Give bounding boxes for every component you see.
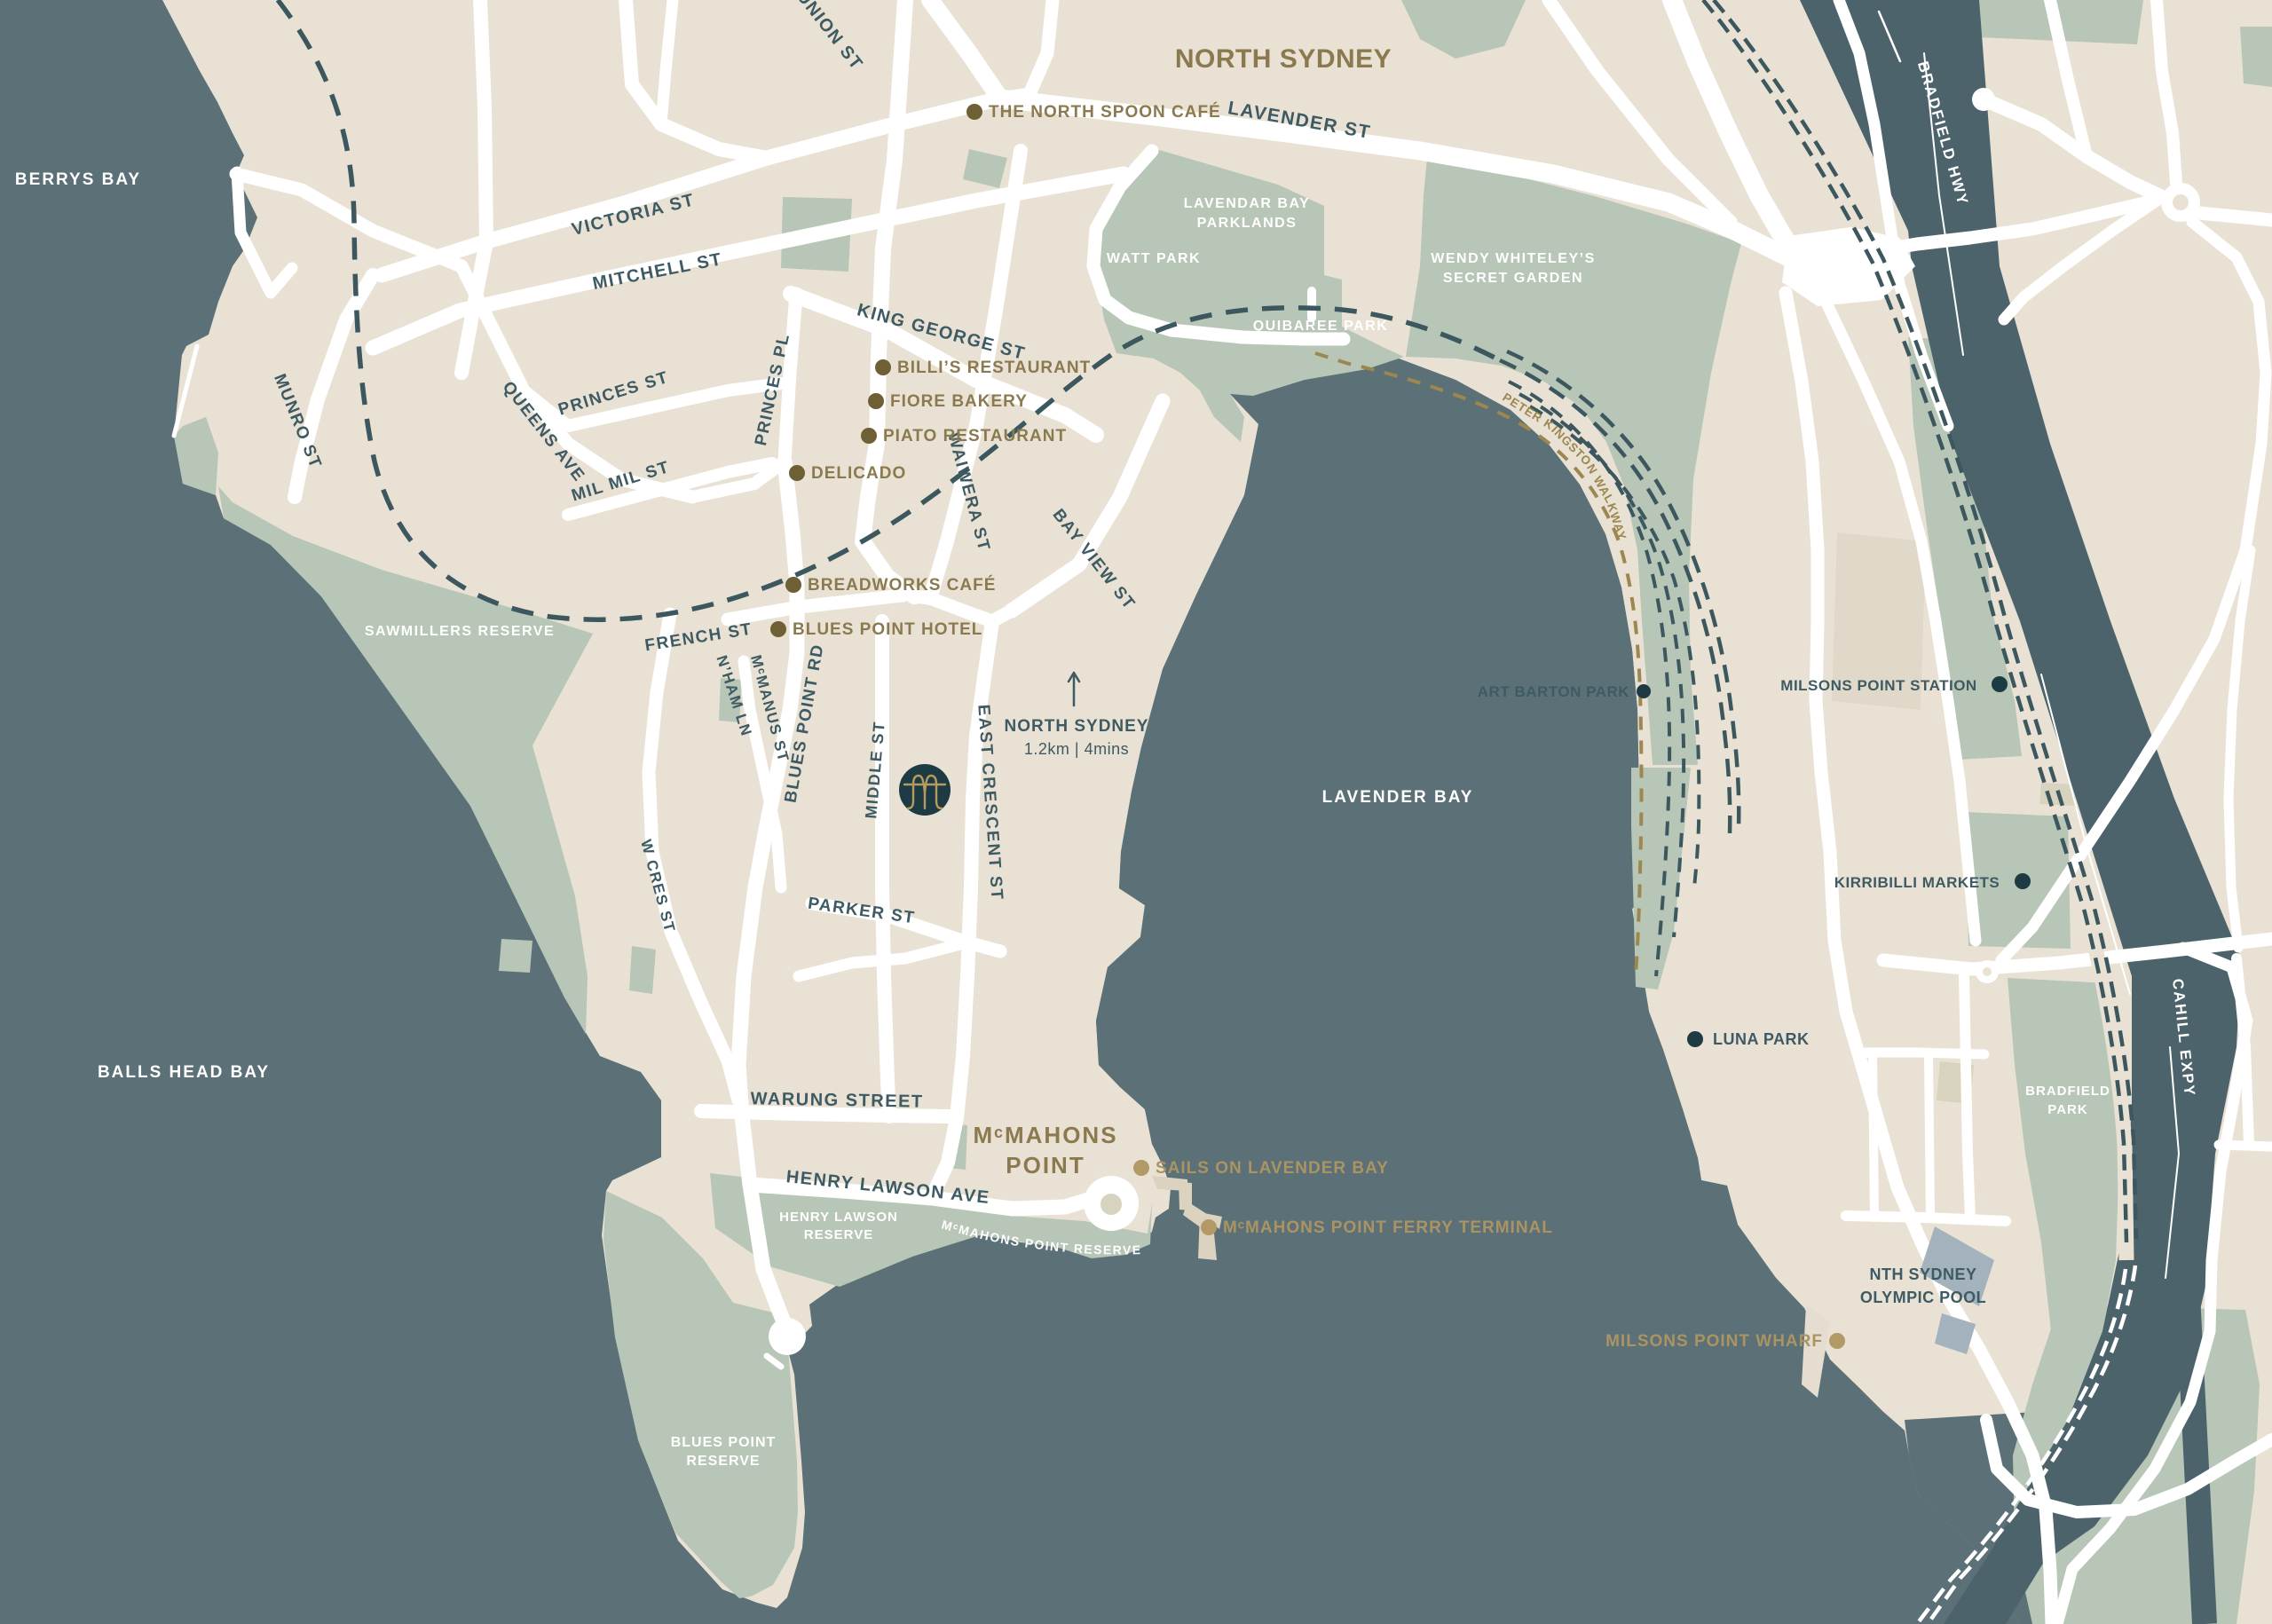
svg-text:LAVENDER BAY: LAVENDER BAY bbox=[1322, 788, 1474, 807]
svg-text:BALLS HEAD BAY: BALLS HEAD BAY bbox=[98, 1063, 270, 1082]
svg-text:KIRRIBILLI MARKETS: KIRRIBILLI MARKETS bbox=[1834, 874, 2000, 891]
svg-text:BERRYS BAY: BERRYS BAY bbox=[15, 170, 141, 189]
svg-text:PIATO RESTAURANT: PIATO RESTAURANT bbox=[883, 427, 1067, 445]
svg-text:OLYMPIC POOL: OLYMPIC POOL bbox=[1860, 1289, 1986, 1306]
svg-text:RESERVE: RESERVE bbox=[804, 1227, 873, 1242]
svg-text:SAILS ON LAVENDER BAY: SAILS ON LAVENDER BAY bbox=[1156, 1159, 1389, 1178]
svg-text:BILLI’S RESTAURANT: BILLI’S RESTAURANT bbox=[897, 359, 1091, 377]
svg-text:LUNA PARK: LUNA PARK bbox=[1713, 1030, 1810, 1048]
svg-text:LAVENDAR BAY: LAVENDAR BAY bbox=[1184, 196, 1310, 211]
svg-text:QUIBAREE PARK: QUIBAREE PARK bbox=[1253, 319, 1389, 334]
svg-text:SECRET GARDEN: SECRET GARDEN bbox=[1443, 271, 1583, 286]
svg-text:BREADWORKS CAFÉ: BREADWORKS CAFÉ bbox=[808, 575, 996, 595]
svg-text:NORTH SYDNEY: NORTH SYDNEY bbox=[1175, 44, 1392, 74]
svg-text:PARK: PARK bbox=[2047, 1102, 2087, 1117]
svg-text:FIORE BAKERY: FIORE BAKERY bbox=[890, 392, 1028, 411]
svg-text:PARKLANDS: PARKLANDS bbox=[1197, 216, 1298, 231]
svg-text:MILSONS POINT STATION: MILSONS POINT STATION bbox=[1780, 677, 1976, 694]
svg-text:BLUES POINT: BLUES POINT bbox=[671, 1435, 777, 1450]
svg-text:DELICADO: DELICADO bbox=[811, 464, 906, 483]
svg-text:1.2km | 4mins: 1.2km | 4mins bbox=[1024, 740, 1129, 758]
svg-text:NTH SYDNEY: NTH SYDNEY bbox=[1869, 1265, 1976, 1283]
svg-text:NORTH SYDNEY: NORTH SYDNEY bbox=[1005, 717, 1149, 736]
svg-text:BLUES POINT HOTEL: BLUES POINT HOTEL bbox=[793, 620, 982, 639]
svg-text:HENRY LAWSON: HENRY LAWSON bbox=[779, 1210, 898, 1225]
svg-text:WATT PARK: WATT PARK bbox=[1107, 251, 1201, 266]
svg-text:POINT: POINT bbox=[1006, 1152, 1085, 1179]
svg-text:RESERVE: RESERVE bbox=[686, 1454, 760, 1469]
svg-text:THE NORTH SPOON CAFÉ: THE NORTH SPOON CAFÉ bbox=[989, 102, 1221, 122]
svg-text:ART BARTON PARK: ART BARTON PARK bbox=[1478, 683, 1629, 700]
svg-text:WARUNG STREET: WARUNG STREET bbox=[750, 1089, 923, 1111]
svg-text:MᶜMAHONS: MᶜMAHONS bbox=[973, 1122, 1117, 1148]
svg-text:MILSONS POINT WHARF: MILSONS POINT WHARF bbox=[1605, 1332, 1823, 1351]
svg-text:MᶜMAHONS POINT FERRY TERMINAL: MᶜMAHONS POINT FERRY TERMINAL bbox=[1223, 1218, 1553, 1237]
svg-text:BRADFIELD: BRADFIELD bbox=[2025, 1084, 2110, 1099]
svg-text:SAWMILLERS RESERVE: SAWMILLERS RESERVE bbox=[365, 624, 555, 639]
svg-text:WENDY WHITELEY’S: WENDY WHITELEY’S bbox=[1431, 251, 1596, 266]
